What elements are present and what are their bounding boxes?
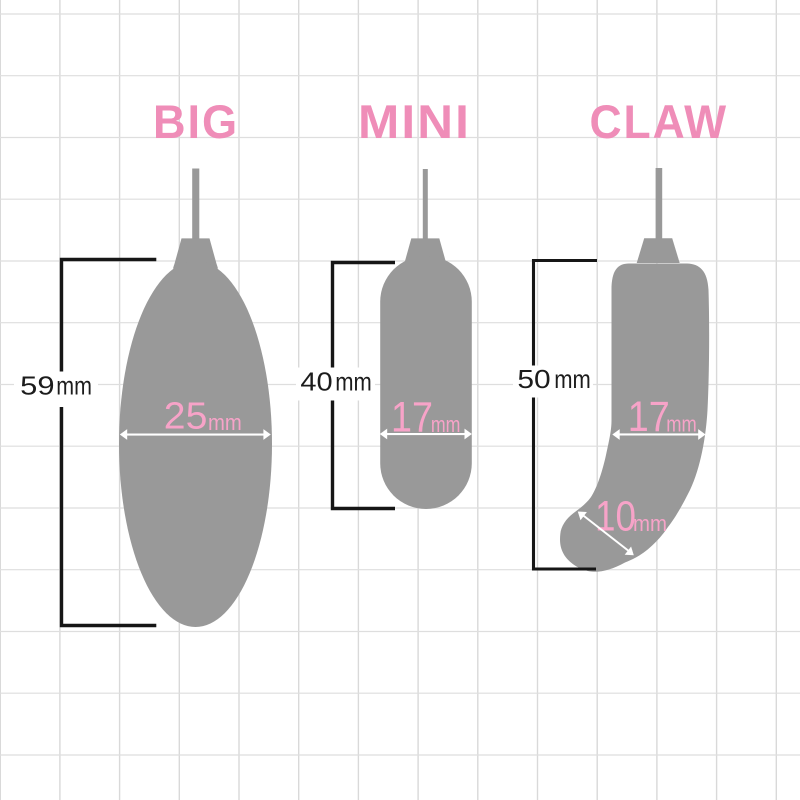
- svg-text:mm: mm: [554, 364, 591, 394]
- svg-text:BIG: BIG: [153, 95, 239, 148]
- svg-text:mm: mm: [666, 412, 697, 437]
- svg-text:50: 50: [517, 364, 550, 394]
- svg-text:40: 40: [300, 367, 332, 397]
- svg-text:mm: mm: [56, 371, 92, 401]
- svg-text:25: 25: [164, 396, 208, 438]
- svg-text:MINI: MINI: [358, 95, 471, 148]
- svg-text:10: 10: [595, 493, 636, 541]
- svg-text:mm: mm: [335, 367, 372, 397]
- svg-text:CLAW: CLAW: [590, 95, 729, 148]
- svg-text:mm: mm: [633, 511, 667, 536]
- svg-text:mm: mm: [208, 410, 242, 435]
- svg-text:59: 59: [20, 371, 54, 401]
